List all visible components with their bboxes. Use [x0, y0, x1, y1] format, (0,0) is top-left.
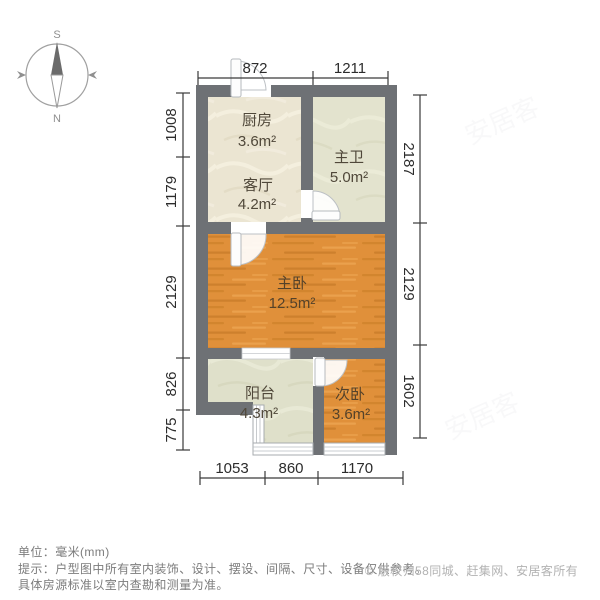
room-balcony-name: 阳台	[245, 385, 275, 402]
dim-left-1008: 1008	[163, 108, 180, 141]
wall-master-lower-divider	[208, 348, 385, 359]
svg-text:安居客: 安居客	[440, 386, 523, 445]
room-master-bath-name: 主卫	[334, 149, 364, 166]
compass-east-tick	[88, 71, 97, 79]
dim-bottom-860: 860	[278, 460, 303, 477]
dim-right-2129: 2129	[400, 267, 417, 300]
compass-west-tick	[17, 71, 26, 79]
room-living-area: 4.2m²	[238, 196, 276, 213]
dim-right-2187: 2187	[400, 142, 417, 175]
dim-bottom-1053: 1053	[215, 460, 248, 477]
room-kitchen-name: 厨房	[242, 112, 272, 129]
dim-top-1211: 1211	[334, 60, 366, 77]
tip-note-line2: 具体房源标准以室内查勘和测量为准。	[18, 577, 427, 594]
room-master-bedroom-name: 主卧	[277, 275, 307, 292]
room-balcony-area: 4.3m²	[240, 405, 278, 422]
second-bedroom-window-icon	[324, 443, 385, 455]
room-second-bedroom-area: 3.6m²	[332, 406, 370, 423]
room-living-name: 客厅	[243, 177, 273, 194]
copyright-note: © 版权归58同城、赶集网、安居客所有	[365, 562, 578, 579]
room-second-bedroom-name: 次卧	[335, 386, 365, 403]
floorplan-canvas: S N 安居客 安居客 安居客	[0, 0, 600, 600]
compass-needle-icon	[51, 42, 63, 75]
room-master-bedroom-area: 12.5m²	[269, 295, 316, 312]
wall-right	[385, 85, 397, 455]
dim-left-775: 775	[163, 417, 180, 442]
dim-bottom-1170: 1170	[341, 460, 373, 477]
wall-top	[196, 85, 397, 97]
dim-left-826: 826	[163, 371, 180, 396]
dim-left-1179: 1179	[163, 176, 180, 208]
dim-right-1602: 1602	[400, 374, 417, 407]
unit-note: 单位：毫米(mm)	[18, 544, 427, 561]
compass-south-label: S	[53, 29, 60, 41]
svg-text:安居客: 安居客	[460, 91, 543, 150]
compass-north-label: N	[53, 113, 61, 125]
balcony-bottom-window-icon	[253, 443, 313, 455]
dim-top-872: 872	[242, 60, 267, 77]
balcony-opening	[242, 348, 290, 359]
floorplan-page: S N 安居客 安居客 安居客	[0, 0, 600, 600]
dim-left-2129: 2129	[163, 275, 180, 308]
wall-left	[196, 85, 208, 415]
compass: S N	[17, 29, 97, 125]
room-kitchen-area: 3.6m²	[238, 133, 276, 150]
room-master-bath-area: 5.0m²	[330, 169, 368, 186]
